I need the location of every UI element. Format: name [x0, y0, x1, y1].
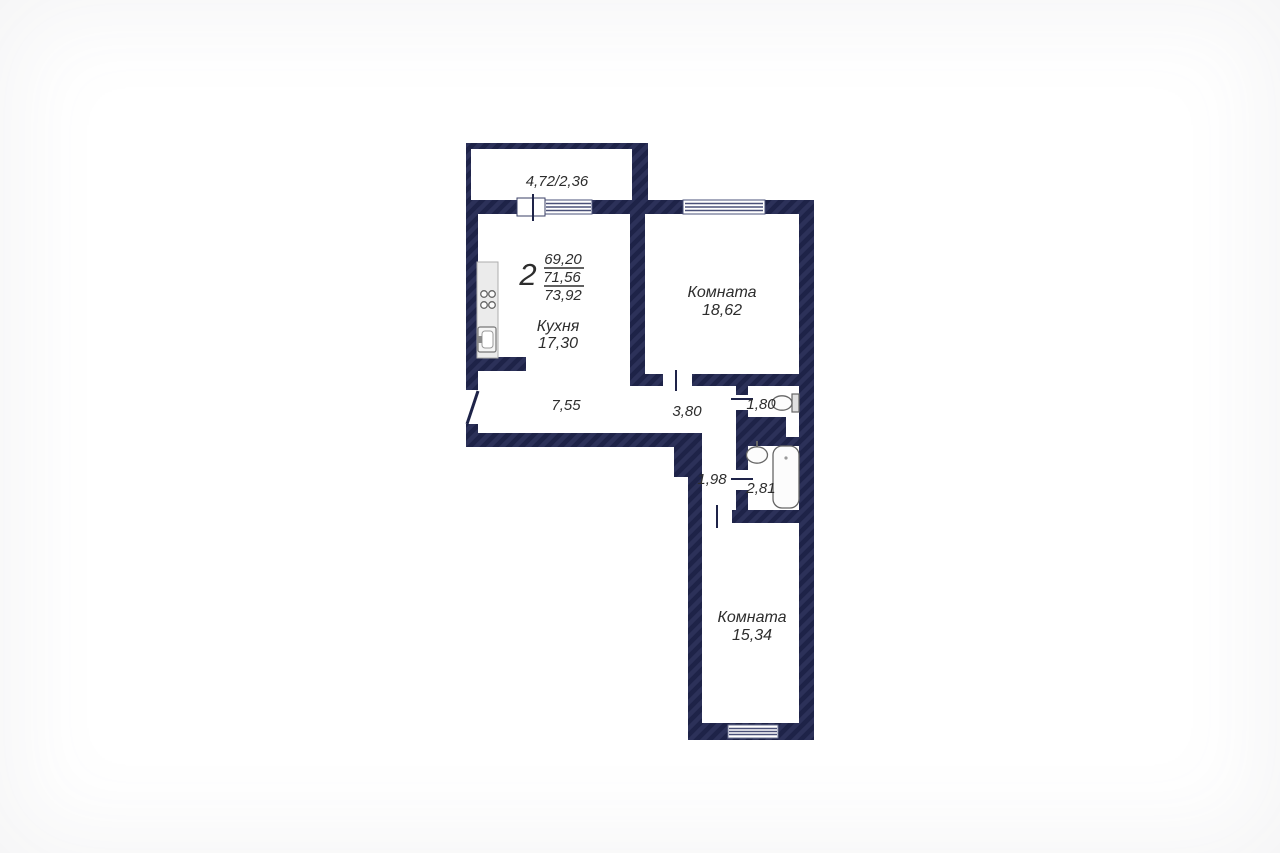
area-second-value: 71,56 [543, 269, 581, 286]
wall-kitchen-bottom-stub [466, 357, 526, 371]
room1-area-label: 18,62 [702, 302, 742, 319]
walls [466, 143, 814, 740]
wall-top-left [466, 200, 517, 214]
balcony-label: 4,72/2,36 [526, 173, 589, 190]
wall-room2-top [732, 510, 814, 523]
kitchen-name-label: Кухня [537, 318, 580, 335]
rooms-count-number: 2 [518, 257, 536, 292]
title-block: 2 69,20 71,56 73,92 [518, 251, 584, 304]
area-total-value: 69,20 [544, 251, 582, 268]
wall-right-outer [799, 214, 814, 740]
faucet-icon [477, 336, 482, 343]
wall-room1-bottom-right [692, 374, 814, 386]
labels: 4,72/2,36 2 69,20 71,56 73,92 Кухня 17,3… [518, 173, 786, 644]
wall-hall-bottom [466, 433, 702, 447]
entrance-door-leaf-icon [467, 391, 478, 424]
wall-room2-left [688, 523, 702, 723]
wc-area-label: 1,80 [746, 396, 776, 413]
kitchen-area-label: 17,30 [538, 335, 578, 352]
room2-window-icon [728, 725, 778, 738]
wall-wc-bath-divider [736, 437, 814, 446]
area-third-value: 73,92 [544, 287, 582, 304]
bathroom-area-label: 2,81 [745, 480, 775, 497]
corridor-area-label: 1,98 [697, 471, 727, 488]
toilet-icon [772, 394, 799, 412]
wall-top-middle [592, 200, 683, 214]
kitchen-sink-icon [477, 327, 496, 352]
kitchen-window-icon [545, 200, 592, 214]
balcony-rail-left [466, 149, 471, 201]
room2-area-label: 15,34 [732, 627, 772, 644]
balcony-rail-top [466, 143, 648, 149]
room2-name-label: Комната [717, 609, 786, 626]
kitchen-counter-icon [477, 262, 498, 358]
floor-plan-page: 4,72/2,36 2 69,20 71,56 73,92 Кухня 17,3… [0, 0, 1280, 853]
balcony-door-icon [517, 194, 545, 221]
hallway-area-label: 3,80 [672, 403, 702, 420]
wall-balcony-right-column [632, 143, 648, 201]
wall-room1-bottom-left [630, 374, 663, 386]
wall-top-right [765, 200, 814, 214]
wall-wc-left-upper [736, 386, 748, 395]
room1-window-icon [683, 200, 765, 214]
wall-corridor-wedge [674, 447, 688, 477]
bathtub-icon [773, 446, 799, 508]
floor-plan: 4,72/2,36 2 69,20 71,56 73,92 Кухня 17,3… [0, 0, 1280, 853]
hall-area-label: 7,55 [551, 397, 581, 414]
room1-name-label: Комната [687, 284, 756, 301]
wall-kitchen-room-divider [630, 214, 645, 386]
duct-block [746, 417, 786, 437]
